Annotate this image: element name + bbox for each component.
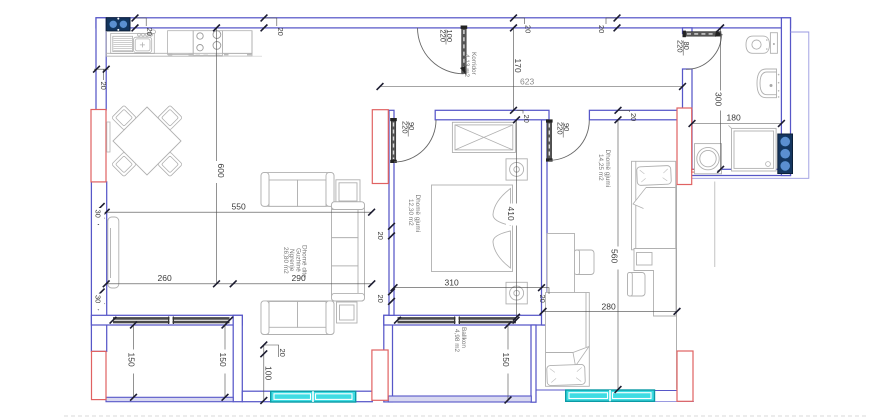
svg-text:410: 410 [506, 207, 516, 221]
svg-text:12,30 m2: 12,30 m2 [407, 199, 414, 226]
svg-text:150: 150 [127, 353, 137, 367]
svg-text:30: 30 [93, 210, 102, 218]
svg-text:20: 20 [99, 82, 108, 90]
svg-text:20: 20 [145, 28, 154, 36]
svg-text:20: 20 [276, 28, 285, 36]
svg-text:600: 600 [216, 164, 226, 178]
svg-text:20: 20 [522, 115, 531, 123]
svg-text:150: 150 [501, 353, 511, 367]
svg-text:20: 20 [629, 113, 638, 121]
svg-text:14,25 m2: 14,25 m2 [597, 154, 604, 181]
svg-text:550: 550 [232, 202, 246, 212]
svg-text:623: 623 [520, 77, 534, 87]
svg-text:260: 260 [158, 273, 172, 283]
svg-text:20: 20 [538, 295, 547, 303]
svg-text:30: 30 [93, 295, 102, 303]
svg-text:4,13 m2: 4,13 m2 [463, 54, 470, 78]
svg-text:Dhomë gjumi: Dhomë gjumi [414, 195, 421, 233]
svg-text:20: 20 [376, 232, 385, 240]
svg-text:280: 280 [602, 302, 616, 312]
svg-text:20: 20 [278, 349, 287, 357]
svg-text:Dhomë gjumi: Dhomë gjumi [604, 150, 611, 188]
svg-text:180: 180 [727, 113, 741, 123]
svg-text:170: 170 [513, 59, 523, 73]
svg-text:560: 560 [610, 249, 620, 263]
svg-text:Ballkon: Ballkon [460, 327, 467, 348]
svg-text:Korridor: Korridor [470, 52, 477, 76]
svg-text:26,80 m2: 26,80 m2 [282, 247, 289, 274]
svg-text:20: 20 [376, 295, 385, 303]
svg-text:20: 20 [524, 25, 533, 33]
svg-text:100: 100 [264, 366, 274, 380]
svg-text:4,98 m2: 4,98 m2 [453, 329, 460, 353]
svg-text:310: 310 [445, 278, 459, 288]
svg-text:150: 150 [218, 353, 228, 367]
svg-text:300: 300 [713, 92, 723, 106]
svg-text:20: 20 [597, 25, 606, 33]
